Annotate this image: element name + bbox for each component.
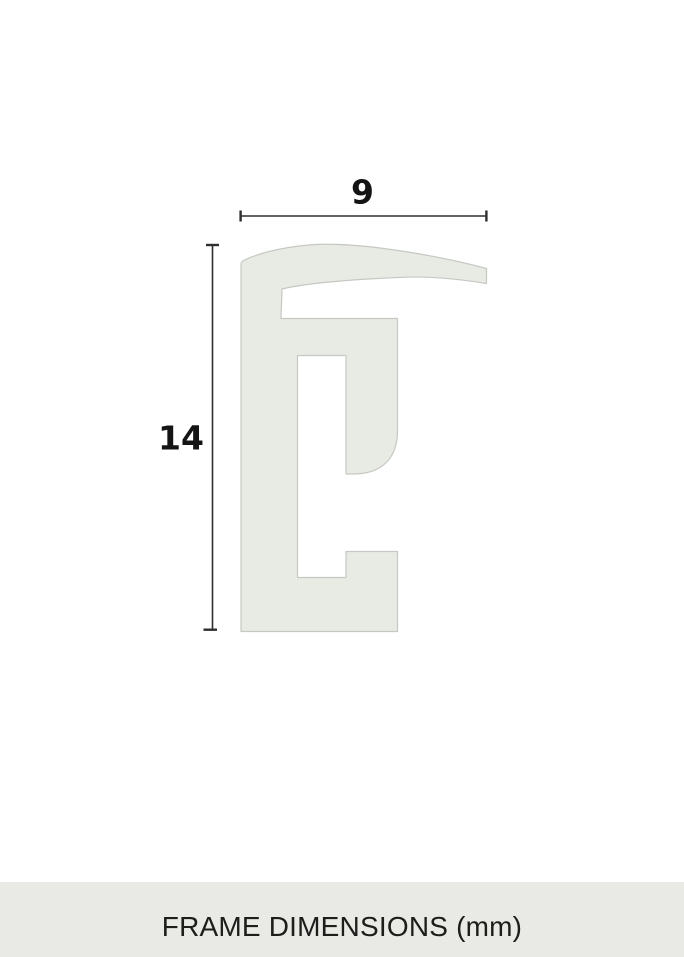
footer-bar: FRAME DIMENSIONS (mm)	[0, 882, 684, 957]
footer-title: FRAME DIMENSIONS (mm)	[162, 911, 522, 943]
height-dimension: 14	[158, 245, 219, 630]
width-dimension-value: 9	[351, 173, 374, 212]
frame-profile-shape	[241, 244, 487, 631]
frame-profile-diagram: 9 14	[0, 0, 684, 882]
product-diagram-page: 9 14 FRAME DIMENSIONS (mm)	[0, 0, 684, 957]
height-dimension-value: 14	[158, 419, 204, 458]
width-dimension: 9	[240, 173, 487, 222]
frame-profile-canvas: 9 14	[0, 0, 684, 882]
